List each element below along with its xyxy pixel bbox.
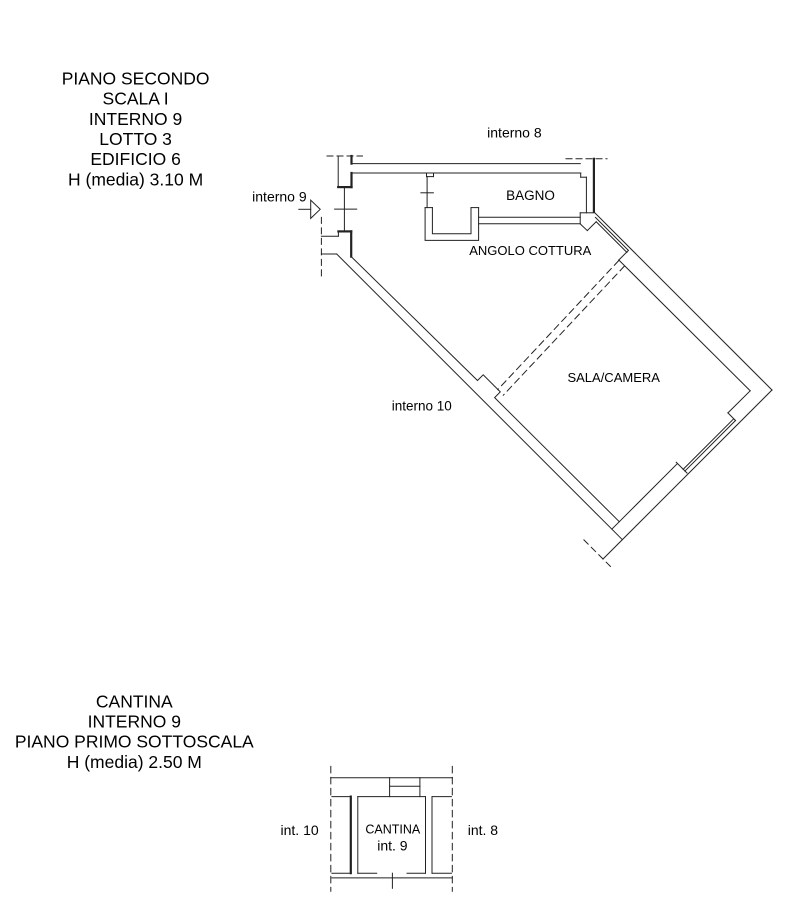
svg-text:PIANO SECONDO: PIANO SECONDO <box>62 69 210 89</box>
svg-text:INTERNO 9: INTERNO 9 <box>89 109 182 129</box>
svg-text:SCALA I: SCALA I <box>103 89 169 109</box>
svg-text:PIANO PRIMO SOTTOSCALA: PIANO PRIMO SOTTOSCALA <box>15 732 254 752</box>
svg-text:interno 10: interno 10 <box>392 399 452 414</box>
svg-text:BAGNO: BAGNO <box>506 188 555 203</box>
svg-text:LOTTO 3: LOTTO 3 <box>99 129 172 149</box>
svg-text:H (media) 3.10 M: H (media) 3.10 M <box>68 169 203 189</box>
svg-text:H (media) 2.50 M: H (media) 2.50 M <box>67 752 202 772</box>
svg-text:CANTINA: CANTINA <box>96 691 173 711</box>
svg-text:int. 8: int. 8 <box>468 822 499 838</box>
svg-text:int. 9: int. 9 <box>377 838 408 854</box>
svg-text:ANGOLO COTTURA: ANGOLO COTTURA <box>469 243 591 258</box>
svg-text:int. 10: int. 10 <box>281 822 319 838</box>
svg-text:SALA/CAMERA: SALA/CAMERA <box>567 370 660 385</box>
svg-text:INTERNO 9: INTERNO 9 <box>88 712 181 732</box>
svg-text:interno 9: interno 9 <box>252 189 307 205</box>
svg-text:CANTINA: CANTINA <box>365 823 421 837</box>
svg-text:interno 8: interno 8 <box>487 125 542 141</box>
svg-text:EDIFICIO 6: EDIFICIO 6 <box>90 149 180 169</box>
